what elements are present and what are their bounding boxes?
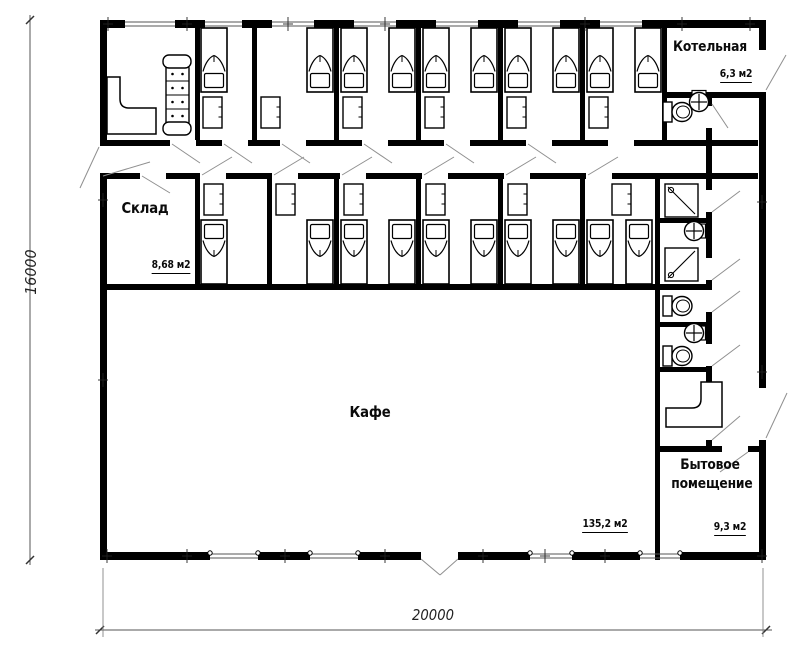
wall-segment: [334, 179, 339, 290]
wall-segment: [166, 173, 200, 179]
door-swing-line: [712, 104, 728, 128]
sofa-button: [181, 73, 184, 76]
wardrobe-icon: [589, 97, 608, 128]
wall-segment: [706, 146, 712, 190]
wardrobe-icon: [203, 97, 222, 128]
wall-segment: [748, 446, 759, 452]
bed-icon: [307, 28, 333, 92]
reception-desk-icon: [107, 77, 156, 134]
wall-segment: [478, 20, 518, 28]
dimension-label-left: 16000: [21, 229, 41, 315]
wall-segment: [759, 440, 766, 560]
sofa-button: [171, 115, 174, 118]
sink-icon: [685, 324, 706, 343]
bed-icon: [423, 28, 449, 92]
window-end-marker: [356, 551, 360, 555]
door-swing-line: [588, 157, 618, 175]
wardrobe-icon: [276, 184, 295, 215]
wall-segment: [416, 179, 421, 290]
shower-icon: [665, 248, 698, 281]
sofa-button: [171, 73, 174, 76]
bed-icon: [505, 28, 531, 92]
door-swing-line: [446, 144, 474, 163]
wardrobe-icon: [343, 97, 362, 128]
wall-segment: [100, 552, 210, 560]
sink-icon: [685, 222, 706, 241]
wall-segment: [706, 128, 712, 140]
door-swing-line: [712, 345, 740, 366]
wall-segment: [660, 284, 712, 290]
window-end-marker: [638, 551, 642, 555]
bed-icon: [626, 220, 652, 284]
bed-icon: [471, 220, 497, 284]
door-swing-line: [766, 393, 787, 438]
wardrobe-icon: [204, 184, 223, 215]
door-swing-line: [202, 157, 232, 175]
window-end-marker: [528, 551, 532, 555]
wall-segment: [580, 28, 585, 140]
bed-icon: [389, 28, 415, 92]
sofa-armrest: [163, 122, 191, 135]
door-swing-line: [274, 157, 304, 175]
door-swing-line: [528, 144, 556, 163]
wall-segment: [388, 140, 444, 146]
window-end-marker: [678, 551, 682, 555]
toilet-icon: [663, 296, 692, 316]
door-swing-line: [421, 559, 440, 575]
door-swing-line: [142, 176, 170, 193]
wall-segment: [267, 179, 272, 290]
toilet-icon: [663, 346, 692, 366]
bed-icon: [635, 28, 661, 92]
door-swing-line: [364, 144, 392, 163]
wall-segment: [298, 173, 340, 179]
wardrobe-icon: [261, 97, 280, 128]
wall-segment: [100, 179, 107, 560]
door-swing-line: [712, 259, 740, 280]
wardrobe-icon: [426, 184, 445, 215]
wall-segment: [655, 367, 712, 372]
window-end-marker: [570, 551, 574, 555]
area-label-warehouse: 8,68 м2: [145, 258, 198, 274]
bed-icon: [201, 28, 227, 92]
wall-segment: [366, 173, 422, 179]
sofa-button: [171, 101, 174, 104]
wall-segment: [252, 28, 257, 140]
room-label-cafe: Кафе: [335, 402, 405, 422]
sofa-button: [171, 87, 174, 90]
wall-segment: [470, 140, 526, 146]
door-swing-line: [712, 291, 740, 312]
wardrobe-icon: [425, 97, 444, 128]
floor-plan-canvas: Котельная 6,3 м2 Склад 8,68 м2 Кафе 135,…: [0, 0, 800, 654]
wall-segment: [530, 173, 586, 179]
area-label-cafe: 135,2 м2: [574, 517, 636, 533]
wall-segment: [100, 20, 107, 146]
wall-segment: [226, 173, 272, 179]
wall-segment: [655, 218, 712, 223]
wall-segment: [759, 92, 766, 388]
bed-icon: [587, 28, 613, 92]
wall-segment: [706, 312, 712, 344]
wall-segment: [107, 140, 170, 146]
wall-segment: [662, 92, 766, 98]
wall-segment: [580, 179, 585, 290]
sofa-armrest: [163, 55, 191, 68]
wall-segment: [306, 140, 362, 146]
door-swing-line: [440, 559, 458, 575]
wall-segment: [759, 20, 766, 50]
wardrobe-icon: [612, 184, 631, 215]
wall-segment: [655, 446, 722, 452]
wall-segment: [314, 20, 354, 28]
utility-desk-icon: [666, 382, 722, 427]
bed-icon: [307, 220, 333, 284]
door-swing-line: [712, 191, 740, 212]
wall-segment: [334, 28, 339, 140]
sofa-button: [181, 87, 184, 90]
area-label-boiler: 6,3 м2: [710, 67, 763, 83]
window-end-marker: [256, 551, 260, 555]
wall-segment: [552, 140, 608, 146]
wardrobe-icon: [507, 97, 526, 128]
window-end-marker: [308, 551, 312, 555]
door-swing-line: [224, 144, 252, 163]
sink-icon: [690, 91, 709, 112]
door-swing-line: [342, 157, 372, 175]
bed-icon: [341, 28, 367, 92]
wall-segment: [634, 140, 758, 146]
door-swing-line: [172, 144, 200, 163]
bed-icon: [553, 28, 579, 92]
wall-segment: [248, 140, 280, 146]
toilet-icon: [663, 102, 692, 122]
wall-segment: [448, 173, 504, 179]
wall-segment: [196, 140, 222, 146]
wall-segment: [680, 552, 766, 560]
window-end-marker: [208, 551, 212, 555]
area-label-utility: 9,3 м2: [704, 520, 757, 536]
bed-icon: [423, 220, 449, 284]
wall-segment: [416, 28, 421, 140]
wardrobe-icon: [508, 184, 527, 215]
bed-icon: [587, 220, 613, 284]
door-swing-line: [80, 147, 99, 188]
bed-icon: [553, 220, 579, 284]
wall-segment: [612, 173, 758, 179]
wall-segment: [100, 173, 140, 179]
wardrobe-icon: [344, 184, 363, 215]
floor-plan-drawing: [0, 0, 800, 654]
wall-segment: [498, 28, 503, 140]
wall-segment: [458, 552, 530, 560]
room-label-warehouse: Склад: [109, 198, 181, 218]
room-label-boiler: Котельная: [664, 38, 756, 57]
wall-segment: [498, 179, 503, 290]
wall-segment: [100, 284, 660, 290]
dimension-label-bottom: 20000: [389, 605, 477, 625]
sofa-button: [181, 115, 184, 118]
bed-icon: [389, 220, 415, 284]
bed-icon: [505, 220, 531, 284]
door-swing-line: [424, 157, 454, 175]
door-swing-line: [506, 157, 536, 175]
door-swing-line: [766, 55, 786, 90]
wall-segment: [396, 20, 436, 28]
wall-segment: [242, 20, 272, 28]
room-label-utility: Бытовое помещение: [671, 456, 748, 494]
wall-segment: [706, 440, 712, 446]
bed-icon: [471, 28, 497, 92]
shower-icon: [665, 184, 698, 217]
sofa-button: [181, 101, 184, 104]
wall-segment: [195, 28, 200, 140]
door-swing-line: [282, 144, 310, 163]
bed-icon: [341, 220, 367, 284]
bed-icon: [201, 220, 227, 284]
